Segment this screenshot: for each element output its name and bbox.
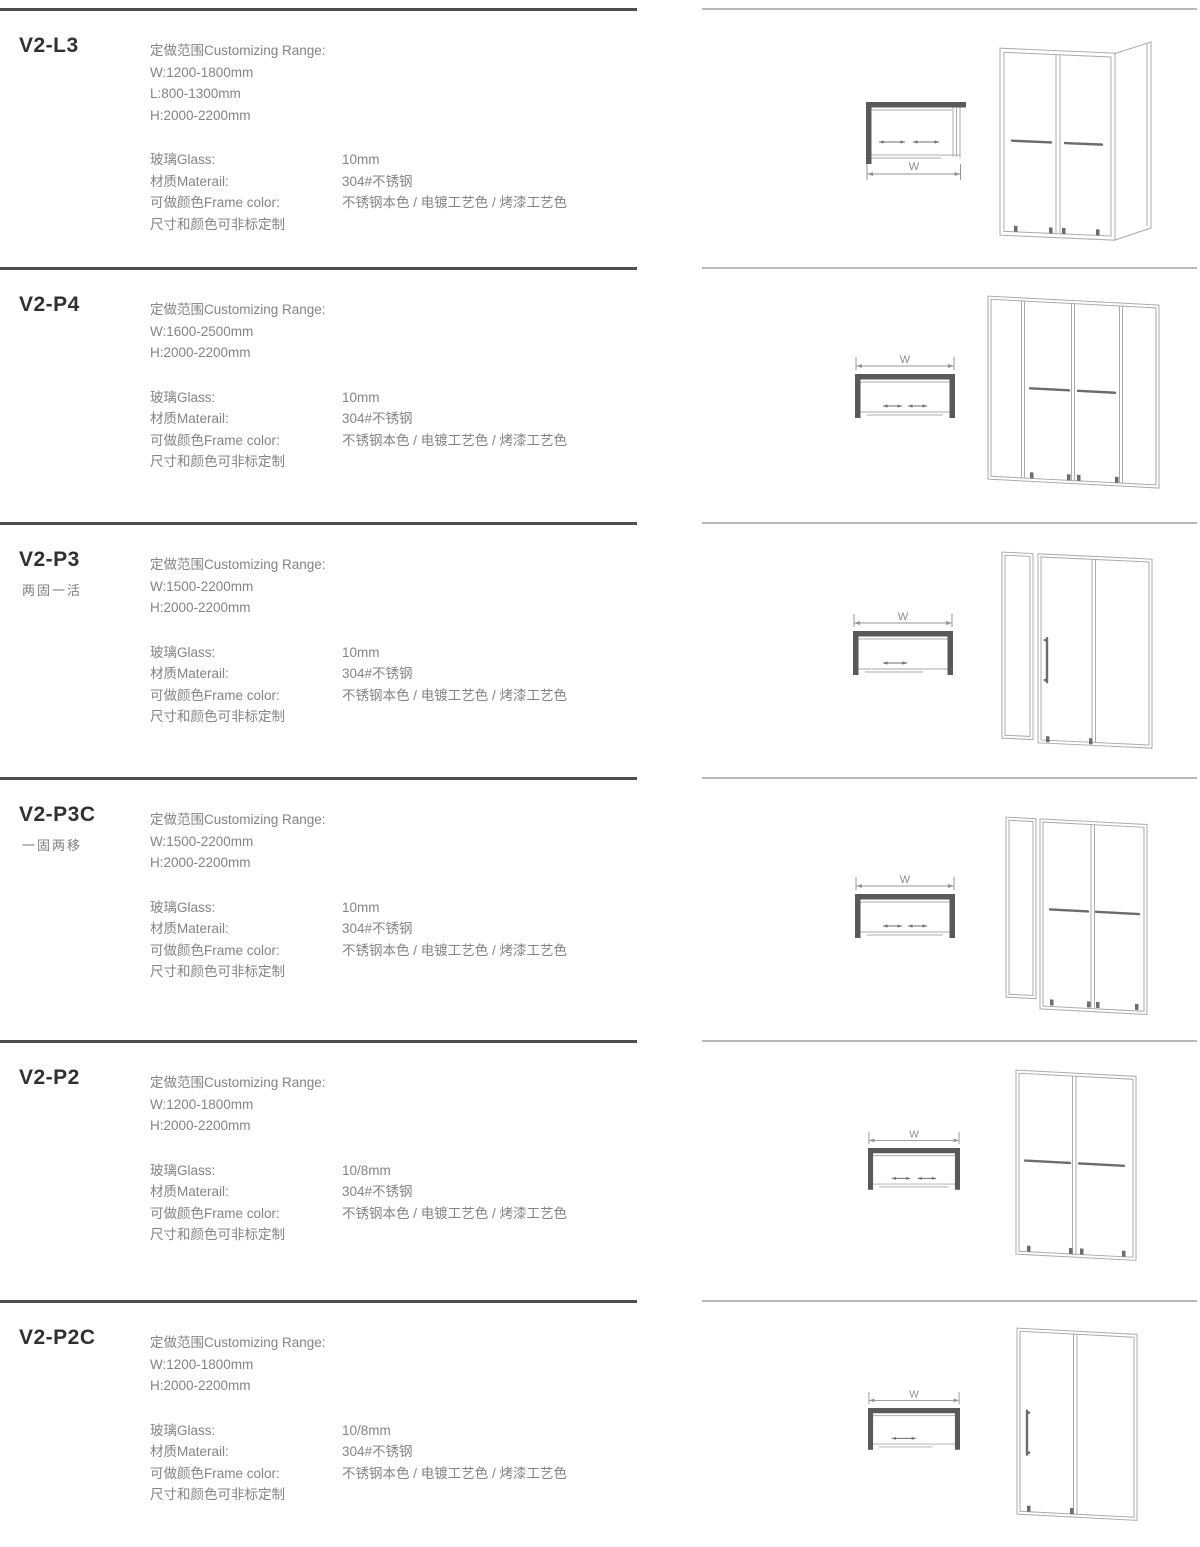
frame-color-value: 不锈钢本色 / 电镀工艺色 / 烤漆工艺色 (342, 940, 567, 962)
door-handle (1096, 912, 1139, 914)
material-label: 材质Materail: (150, 1181, 342, 1203)
door-handle (1025, 1161, 1070, 1163)
spec-table: 玻璃Glass:10mm 材质Materail:304#不锈钢 可做颜色Fram… (150, 897, 567, 983)
frame-color-label: 可做颜色Frame color: (150, 192, 342, 214)
range-line: W:1200-1800mm (150, 62, 567, 84)
divider-dark (0, 267, 637, 270)
slide-arrow-icon (879, 140, 939, 143)
iso-view (1015, 1324, 1141, 1526)
slide-arrow-icon (892, 1177, 936, 1180)
spec-table: 玻璃Glass:10mm 材质Materail:304#不锈钢 可做颜色Fram… (150, 149, 567, 235)
glass-label: 玻璃Glass: (150, 149, 342, 171)
divider-light (702, 8, 1197, 10)
width-dimension: W (867, 161, 961, 180)
custom-note: 尺寸和颜色可非标定制 (150, 214, 567, 236)
iso-view (1004, 811, 1150, 1015)
material-label: 材质Materail: (150, 663, 342, 685)
frame-color-value: 不锈钢本色 / 电镀工艺色 / 烤漆工艺色 (342, 1203, 567, 1225)
slide-arrow-icon (883, 924, 927, 927)
side-return-panel (1115, 42, 1151, 240)
spec-block: 定做范围Customizing Range: W:1200-1800mm L:8… (150, 40, 567, 235)
frame-color-value: 不锈钢本色 / 电镀工艺色 / 烤漆工艺色 (342, 1463, 567, 1485)
range-line: H:2000-2200mm (150, 852, 567, 874)
width-dimension: W (869, 1389, 959, 1404)
glass-label: 玻璃Glass: (150, 642, 342, 664)
divider-light (702, 1300, 1197, 1302)
frame-color-value: 不锈钢本色 / 电镀工艺色 / 烤漆工艺色 (342, 192, 567, 214)
frame-color-label: 可做颜色Frame color: (150, 1463, 342, 1485)
custom-note: 尺寸和颜色可非标定制 (150, 1224, 567, 1246)
width-dimension-label: W (909, 1129, 919, 1140)
range-line: H:2000-2200mm (150, 597, 567, 619)
model-subtitle: 两固一活 (22, 580, 82, 599)
range-line: H:2000-2200mm (150, 1115, 567, 1137)
glass-label: 玻璃Glass: (150, 1420, 342, 1442)
frame-color-label: 可做颜色Frame color: (150, 685, 342, 707)
model-name: V2-L3 (19, 34, 79, 58)
door-handle (1079, 1163, 1124, 1165)
section-v2-p2c: V2-P2C 定做范围Customizing Range: W:1200-180… (0, 1300, 1200, 1547)
plan-view: W (855, 355, 955, 433)
divider-dark (0, 8, 637, 11)
range-title: 定做范围Customizing Range: (150, 1072, 567, 1094)
spec-table: 玻璃Glass:10/8mm 材质Materail:304#不锈钢 可做颜色Fr… (150, 1160, 567, 1246)
spec-table: 玻璃Glass:10mm 材质Materail:304#不锈钢 可做颜色Fram… (150, 642, 567, 728)
divider-light (702, 1040, 1197, 1042)
door-handle (1050, 909, 1088, 911)
width-dimension-label: W (900, 354, 911, 366)
section-v2-p4: V2-P4 定做范围Customizing Range: W:1600-2500… (0, 267, 1200, 522)
section-v2-p3c: V2-P3C 一固两移 定做范围Customizing Range: W:150… (0, 777, 1200, 1040)
range-line: W:1500-2200mm (150, 831, 567, 853)
model-subtitle: 一固两移 (22, 835, 82, 854)
divider-light (702, 522, 1197, 524)
custom-note: 尺寸和颜色可非标定制 (150, 706, 567, 728)
spec-block: 定做范围Customizing Range: W:1200-1800mm H:2… (150, 1072, 567, 1246)
model-name: V2-P3 (19, 548, 80, 572)
section-v2-p3: V2-P3 两固一活 定做范围Customizing Range: W:1500… (0, 522, 1200, 777)
range-title: 定做范围Customizing Range: (150, 1332, 567, 1354)
material-value: 304#不锈钢 (342, 918, 413, 940)
range-title: 定做范围Customizing Range: (150, 809, 567, 831)
range-line: H:2000-2200mm (150, 342, 567, 364)
iso-view (986, 291, 1162, 493)
model-name: V2-P4 (19, 293, 80, 317)
section-v2-l3: V2-L3 定做范围Customizing Range: W:1200-1800… (0, 8, 1200, 267)
material-value: 304#不锈钢 (342, 1181, 413, 1203)
glass-value: 10/8mm (342, 1420, 391, 1442)
plan-view: W (853, 612, 953, 690)
material-label: 材质Materail: (150, 171, 342, 193)
material-label: 材质Materail: (150, 918, 342, 940)
width-dimension: W (856, 874, 954, 890)
range-title: 定做范围Customizing Range: (150, 554, 567, 576)
iso-view (1000, 548, 1156, 752)
material-value: 304#不锈钢 (342, 1441, 413, 1463)
slide-arrow-icon (883, 661, 907, 664)
width-dimension-label: W (909, 1389, 919, 1400)
width-dimension: W (869, 1129, 959, 1144)
material-label: 材质Materail: (150, 408, 342, 430)
range-line: W:1600-2500mm (150, 321, 567, 343)
width-dimension-label: W (909, 161, 920, 173)
range-line: L:800-1300mm (150, 83, 567, 105)
divider-dark (0, 777, 637, 780)
iso-view (1014, 1066, 1140, 1266)
iso-view (996, 40, 1156, 248)
spec-block: 定做范围Customizing Range: W:1200-1800mm H:2… (150, 1332, 567, 1506)
range-line: H:2000-2200mm (150, 1375, 567, 1397)
glass-label: 玻璃Glass: (150, 1160, 342, 1182)
frame-color-value: 不锈钢本色 / 电镀工艺色 / 烤漆工艺色 (342, 685, 567, 707)
divider-dark (0, 522, 637, 525)
model-name: V2-P2 (19, 1066, 80, 1090)
range-line: H:2000-2200mm (150, 105, 567, 127)
range-line: W:1200-1800mm (150, 1094, 567, 1116)
glass-value: 10mm (342, 387, 380, 409)
glass-value: 10mm (342, 149, 380, 171)
glass-value: 10/8mm (342, 1160, 391, 1182)
divider-dark (0, 1040, 637, 1043)
frame-color-label: 可做颜色Frame color: (150, 430, 342, 452)
custom-note: 尺寸和颜色可非标定制 (150, 1484, 567, 1506)
door-handle (1078, 391, 1115, 393)
glass-label: 玻璃Glass: (150, 387, 342, 409)
glass-label: 玻璃Glass: (150, 897, 342, 919)
spec-table: 玻璃Glass:10mm 材质Materail:304#不锈钢 可做颜色Fram… (150, 387, 567, 473)
spec-block: 定做范围Customizing Range: W:1500-2200mm H:2… (150, 809, 567, 983)
frame-color-value: 不锈钢本色 / 电镀工艺色 / 烤漆工艺色 (342, 430, 567, 452)
plan-view: W (866, 100, 966, 192)
custom-note: 尺寸和颜色可非标定制 (150, 451, 567, 473)
glass-value: 10mm (342, 642, 380, 664)
glass-value: 10mm (342, 897, 380, 919)
divider-dark (0, 1300, 637, 1303)
width-dimension-label: W (900, 874, 911, 886)
frame-color-label: 可做颜色Frame color: (150, 940, 342, 962)
catalog-page: V2-L3 定做范围Customizing Range: W:1200-1800… (0, 0, 1200, 1547)
spec-block: 定做范围Customizing Range: W:1600-2500mm H:2… (150, 299, 567, 473)
material-value: 304#不锈钢 (342, 171, 413, 193)
range-title: 定做范围Customizing Range: (150, 299, 567, 321)
plan-view: W (855, 875, 955, 953)
range-line: W:1500-2200mm (150, 576, 567, 598)
frame-color-label: 可做颜色Frame color: (150, 1203, 342, 1225)
width-dimension: W (856, 354, 954, 370)
divider-light (702, 267, 1197, 269)
material-value: 304#不锈钢 (342, 663, 413, 685)
model-name: V2-P2C (19, 1326, 96, 1350)
divider-light (702, 777, 1197, 779)
section-v2-p2: V2-P2 定做范围Customizing Range: W:1200-1800… (0, 1040, 1200, 1300)
model-name: V2-P3C (19, 803, 96, 827)
plan-view: W (868, 1390, 960, 1464)
spec-table: 玻璃Glass:10/8mm 材质Materail:304#不锈钢 可做颜色Fr… (150, 1420, 567, 1506)
spec-block: 定做范围Customizing Range: W:1500-2200mm H:2… (150, 554, 567, 728)
width-dimension-label: W (898, 611, 909, 623)
slide-arrow-icon (883, 404, 927, 407)
width-dimension: W (854, 611, 952, 627)
custom-note: 尺寸和颜色可非标定制 (150, 961, 567, 983)
door-handle (1065, 143, 1102, 145)
plan-view: W (868, 1130, 960, 1204)
door-handle (1030, 388, 1069, 390)
range-title: 定做范围Customizing Range: (150, 40, 567, 62)
door-handle (1012, 141, 1051, 143)
material-label: 材质Materail: (150, 1441, 342, 1463)
slide-arrow-icon (892, 1437, 916, 1440)
material-value: 304#不锈钢 (342, 408, 413, 430)
range-line: W:1200-1800mm (150, 1354, 567, 1376)
